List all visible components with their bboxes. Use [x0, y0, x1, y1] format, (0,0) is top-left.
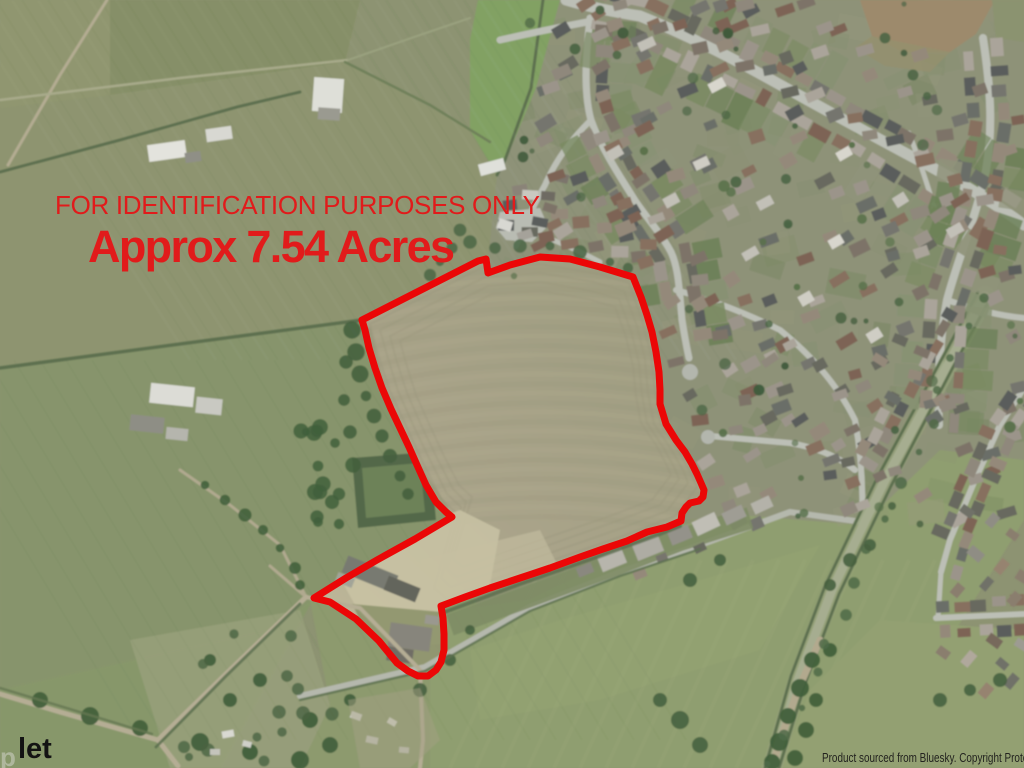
svg-text:Approx 7.54 Acres: Approx 7.54 Acres	[88, 221, 455, 272]
svg-text:Product sourced from Bluesky.: Product sourced from Bluesky. Copyright …	[822, 750, 1024, 765]
svg-text:p: p	[0, 742, 16, 768]
svg-text:let: let	[18, 733, 52, 765]
svg-text:FOR IDENTIFICATION PURPOSES ON: FOR IDENTIFICATION PURPOSES ONLY	[55, 190, 540, 220]
